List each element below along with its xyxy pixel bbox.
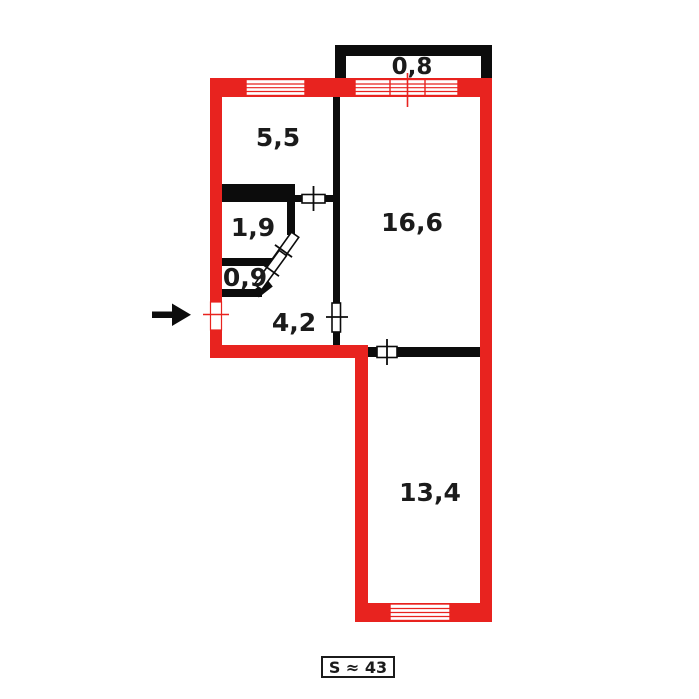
entrance-door — [203, 302, 229, 330]
room-label-closet-small: 0,9 — [223, 263, 267, 292]
entrance-arrow-icon — [152, 304, 191, 327]
room-labels: 0,8 5,5 1,9 0,9 4,2 16,6 13,4 — [223, 54, 461, 507]
door-room-top — [302, 186, 325, 211]
room-label-room-top: 5,5 — [256, 123, 300, 152]
wall-living-upper — [333, 97, 340, 303]
balcony-wall-left — [335, 45, 346, 78]
total-area-box: S ≈ 43 — [322, 657, 394, 677]
outer-wall-hall-bottom — [210, 345, 368, 358]
wall-closet-front — [222, 184, 295, 202]
outer-wall-mid-vertical — [355, 345, 368, 622]
door-bedroom — [377, 339, 397, 365]
outer-wall-right — [480, 78, 492, 622]
room-label-balcony: 0,8 — [392, 54, 433, 80]
floor-plan-canvas: 0,8 5,5 1,9 0,9 4,2 16,6 13,4 S ≈ 43 — [0, 0, 699, 699]
room-label-closet-big: 1,9 — [231, 213, 275, 242]
wall-closet-side — [287, 202, 295, 235]
floor-plan-drawing: 0,8 5,5 1,9 0,9 4,2 16,6 13,4 S ≈ 43 — [0, 0, 699, 699]
balcony-wall-right — [481, 45, 492, 78]
wall-living-lower — [333, 332, 340, 345]
door-living-room — [326, 303, 348, 332]
total-area-label: S ≈ 43 — [329, 658, 387, 677]
room-label-living-room: 16,6 — [381, 208, 443, 237]
room-label-bedroom: 13,4 — [399, 478, 461, 507]
room-label-hallway: 4,2 — [272, 308, 316, 337]
window-room-top — [246, 80, 305, 96]
window-bedroom — [390, 604, 450, 621]
